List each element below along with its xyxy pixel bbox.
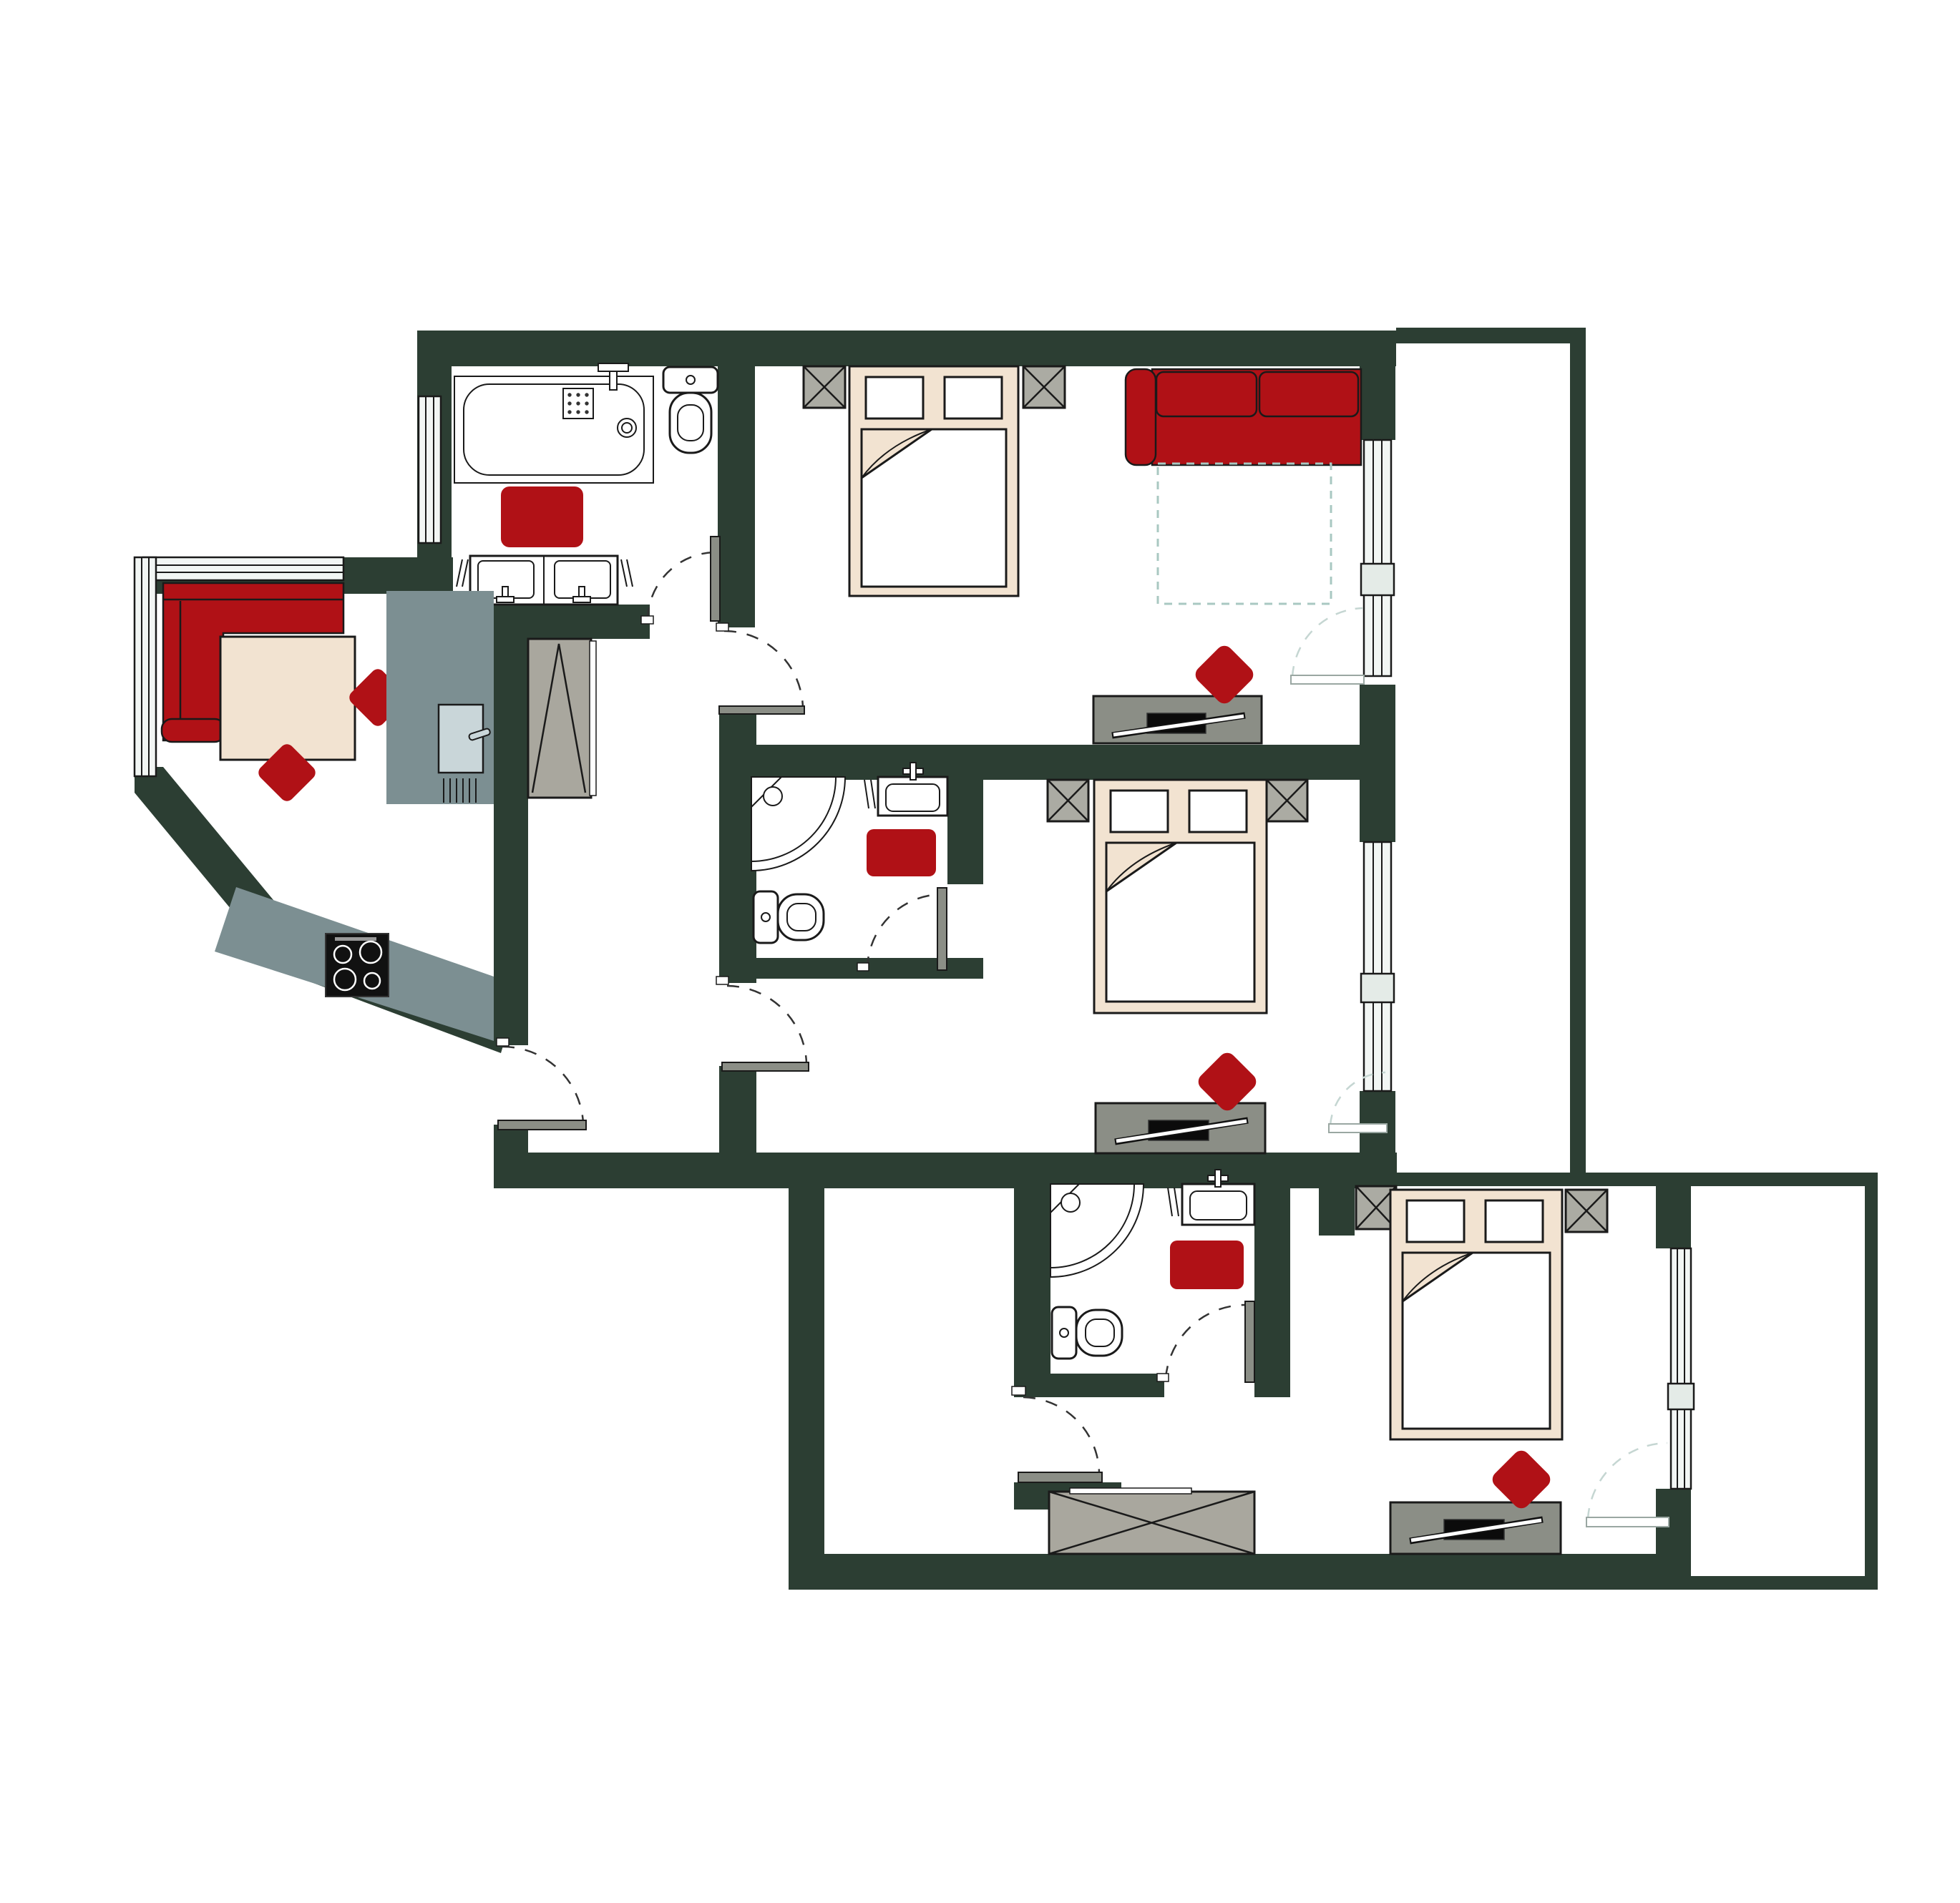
double-bed-2 (1094, 780, 1267, 1013)
balcony1-parapet-top (1396, 328, 1586, 343)
balcony2-parapet-bottom (1691, 1576, 1878, 1590)
tv-dresser-1 (1093, 696, 1262, 743)
dining-table (220, 637, 355, 760)
balcony1-parapet-right (1570, 328, 1586, 1180)
shower-dots (567, 393, 588, 414)
wall-bed3-left-pier (1319, 1186, 1355, 1236)
red-sofa (1126, 369, 1361, 465)
wall-bath1-right (718, 366, 755, 627)
double-bed-1 (849, 366, 1018, 596)
double-bed-3 (1390, 1190, 1562, 1439)
door-bathroom-1 (641, 537, 720, 624)
bathroom-1 (454, 363, 718, 605)
door-lower-entrance (1012, 1386, 1102, 1482)
sofa-pullout-outline (1158, 464, 1331, 604)
french-window-bedroom2 (1361, 842, 1394, 1091)
french-door-living (1291, 608, 1364, 684)
bathtub (454, 363, 653, 483)
corner-shower-2 (751, 777, 845, 871)
door-bedroom-1 (716, 623, 804, 714)
window-bath1 (419, 396, 441, 543)
wall-bed3-right-pier-1 (1656, 1173, 1691, 1248)
french-window-bedroom3 (1668, 1248, 1694, 1489)
window-leftwing-top (143, 557, 343, 580)
corner-shower-3 (1050, 1184, 1144, 1277)
bath-mat-3 (1170, 1241, 1244, 1289)
bath-mat-2 (867, 829, 936, 876)
wall-top (417, 331, 1396, 366)
cooktop (326, 934, 389, 997)
door-bathroom-3 (1157, 1301, 1254, 1382)
bathroom-2 (751, 763, 947, 943)
toilet-3 (1052, 1307, 1122, 1359)
left-wing (162, 583, 494, 1041)
wall-bottom (789, 1554, 1691, 1590)
tall-wardrobe (528, 639, 596, 798)
french-window-living (1361, 440, 1394, 676)
wall-right-pier-2 (1360, 685, 1395, 842)
bath-mat-1 (501, 486, 583, 547)
balcony2-parapet-right (1865, 1173, 1878, 1590)
floor-plan-canvas (0, 0, 1960, 1903)
window-leftwing-left (135, 557, 156, 776)
door-bedroom-2 (716, 977, 809, 1071)
toilet-2 (754, 891, 824, 943)
bedroom-2 (1048, 780, 1307, 1153)
wall-bath3-right (1254, 1173, 1290, 1397)
door-unit1-entrance (497, 1038, 586, 1130)
bathroom-3 (1050, 1170, 1254, 1359)
bedroom-1-living (804, 366, 1361, 743)
wall-lower-left (789, 1188, 824, 1590)
bedroom-3 (1356, 1186, 1607, 1554)
toilet-1 (663, 367, 718, 453)
wall-bath3-left (1014, 1188, 1050, 1397)
wall-bath3-bottom (1014, 1374, 1164, 1397)
wide-wardrobe (1049, 1488, 1254, 1554)
wall-corridor-thin (1397, 1173, 1878, 1186)
tv-dresser-3 (1390, 1502, 1561, 1554)
wall-hall-left (494, 594, 528, 1045)
wall-bath2-right (947, 780, 983, 884)
tv-dresser-2 (1096, 1103, 1265, 1153)
wall-right-pier-1 (1360, 366, 1395, 440)
wall-divider-units (756, 745, 1360, 780)
